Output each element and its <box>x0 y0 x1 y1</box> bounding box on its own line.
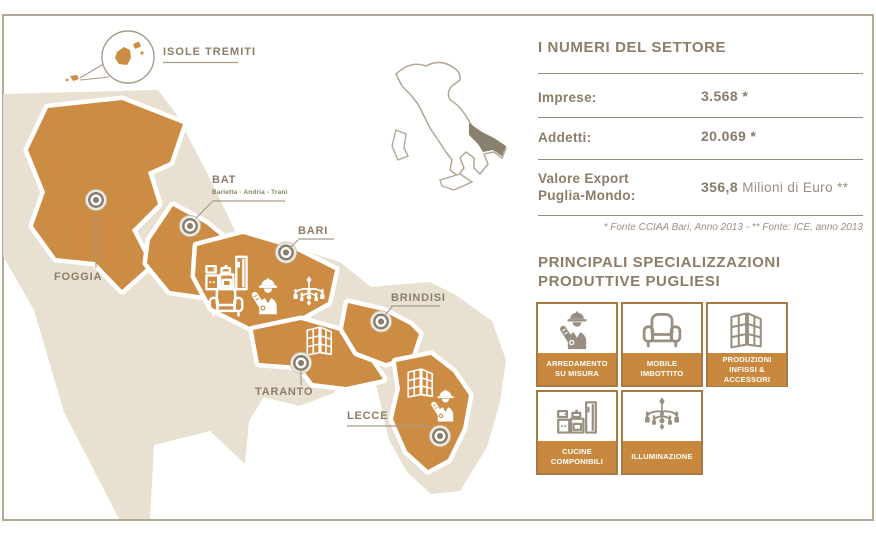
spec-label: MOBILE IMBOTTITO <box>623 353 701 385</box>
stat-value-export-number: 356,8 <box>701 179 738 195</box>
spec-box-infissi: PRODUZIONI INFISSI & ACCESSORI <box>706 302 788 387</box>
spec-label: ARREDAMENTO SU MISURA <box>538 353 616 385</box>
chandelier-icon <box>623 392 701 441</box>
stats-title: I NUMERI DEL SETTORE <box>538 39 726 56</box>
divider <box>538 159 863 160</box>
label-brindisi: BRINDISI <box>391 293 446 304</box>
armchair-icon <box>623 304 701 353</box>
stat-label-imprese: Imprese: <box>538 89 597 106</box>
stat-value-export-unit: Milioni di Euro ** <box>738 180 848 195</box>
stat-label-addetti: Addetti: <box>538 129 591 146</box>
stat-value-imprese: 3.568 * <box>701 88 748 104</box>
stat-label-export: Valore Export Puglia-Mondo: <box>538 170 636 204</box>
divider <box>538 215 863 216</box>
marker-lecce <box>429 425 450 446</box>
marker-brindisi <box>370 311 391 332</box>
stat-value-addetti: 20.069 * <box>701 128 756 144</box>
spec-label: CUCINE COMPONIBILI <box>538 441 616 473</box>
spec-box-mobile-imbottito: MOBILE IMBOTTITO <box>621 302 703 387</box>
infographic-page: { "map": { "callout_label": "ISOLE TREMI… <box>0 0 876 536</box>
stat-label-export-line2: Puglia-Mondo: <box>538 188 636 203</box>
spec-label: ILLUMINAZIONE <box>623 441 701 473</box>
specializations-title-line1: PRINCIPALI SPECIALIZZAZIONI <box>538 254 781 271</box>
marker-bat <box>179 215 200 236</box>
divider <box>538 73 863 74</box>
italy-inset-map <box>392 62 506 190</box>
label-lecce: LECCE <box>347 411 388 422</box>
label-bat: BAT <box>212 175 236 186</box>
spec-label: PRODUZIONI INFISSI & ACCESSORI <box>708 353 786 386</box>
spec-box-arredamento: ARREDAMENTO SU MISURA <box>536 302 618 387</box>
marker-foggia <box>85 189 106 210</box>
label-foggia: FOGGIA <box>54 272 102 283</box>
label-isole-tremiti: ISOLE TREMITI <box>163 47 256 58</box>
stat-value-export: 356,8 Milioni di Euro ** <box>701 179 848 195</box>
spec-box-illuminazione: ILLUMINAZIONE <box>621 390 703 475</box>
kitchen-icon <box>538 392 616 441</box>
divider <box>538 117 863 118</box>
source-footnote: * Fonte CCIAA Bari, Anno 2013 - ** Fonte… <box>538 222 863 233</box>
tremiti-callout <box>66 31 154 83</box>
specializations-title-line2: PRODUTTIVE PUGLIESI <box>538 273 720 290</box>
label-taranto: TARANTO <box>255 387 313 398</box>
worker-icon <box>538 304 616 353</box>
label-bat-sub: Barletta - Andria - Trani <box>212 190 287 196</box>
label-bari: BARI <box>298 226 328 237</box>
spec-box-cucine: CUCINE COMPONIBILI <box>536 390 618 475</box>
stat-label-export-line1: Valore Export <box>538 171 629 186</box>
window-icon <box>708 304 786 353</box>
